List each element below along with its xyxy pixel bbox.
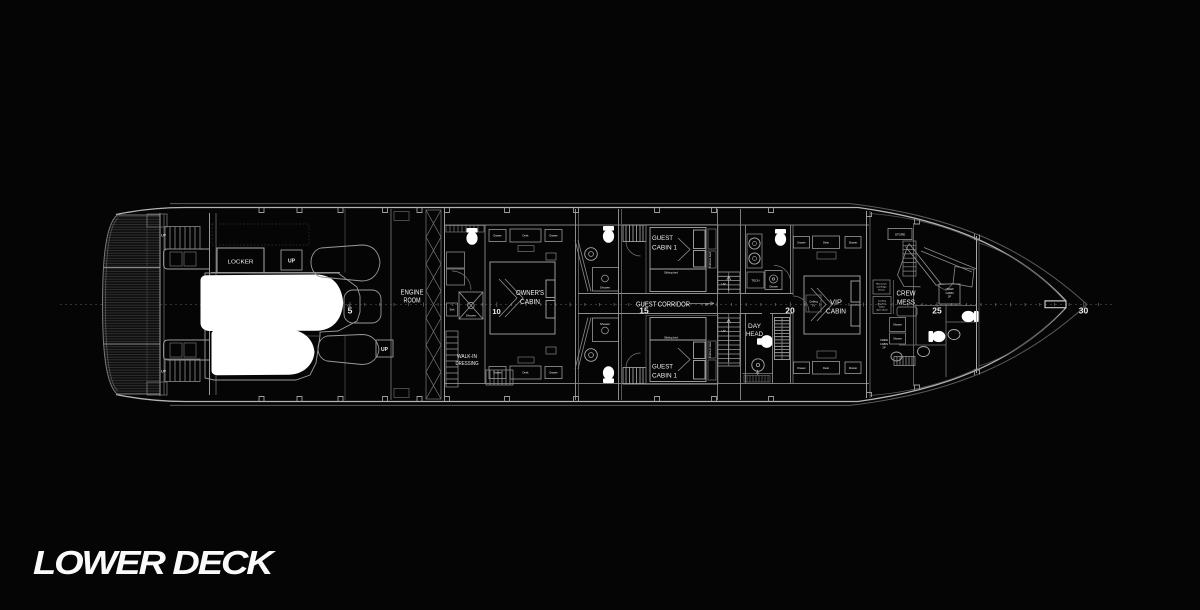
svg-text:OWNER'S: OWNER'S bbox=[516, 290, 544, 297]
svg-text:Shower: Shower bbox=[466, 314, 476, 318]
svg-text:30: 30 bbox=[1079, 306, 1089, 316]
svg-text:Shower: Shower bbox=[893, 337, 902, 341]
svg-text:Desk: Desk bbox=[823, 241, 830, 245]
svg-text:washing: washing bbox=[878, 301, 887, 303]
svg-text:Desk: Desk bbox=[523, 234, 530, 238]
svg-text:Drawer: Drawer bbox=[849, 241, 857, 245]
svg-text:CREW: CREW bbox=[946, 287, 954, 291]
svg-text:UP: UP bbox=[381, 347, 389, 353]
svg-text:Sink: Sink bbox=[449, 308, 455, 312]
svg-text:machine: machine bbox=[878, 304, 887, 306]
svg-text:UP: UP bbox=[721, 329, 725, 333]
svg-text:LOCKER: LOCKER bbox=[228, 260, 254, 266]
svg-text:Sliding bed: Sliding bed bbox=[664, 271, 678, 275]
svg-text:Sliding bed: Sliding bed bbox=[664, 336, 678, 340]
svg-text:STORE: STORE bbox=[895, 233, 905, 237]
svg-text:GUEST: GUEST bbox=[652, 235, 673, 242]
svg-text:CABIN: CABIN bbox=[946, 291, 954, 295]
svg-text:10: 10 bbox=[492, 307, 500, 316]
svg-text:Drawer: Drawer bbox=[493, 371, 501, 375]
svg-text:CABIN 1: CABIN 1 bbox=[652, 245, 677, 252]
svg-text:Drawer: Drawer bbox=[493, 234, 501, 238]
svg-text:CABIN: CABIN bbox=[880, 342, 888, 346]
svg-text:Shower: Shower bbox=[893, 323, 902, 327]
svg-text:Desk: Desk bbox=[823, 366, 830, 370]
svg-text:15: 15 bbox=[639, 306, 649, 316]
svg-text:Shower: Shower bbox=[600, 322, 610, 326]
svg-text:Pullman bed: Pullman bed bbox=[708, 252, 712, 268]
svg-text:freezer: freezer bbox=[878, 289, 885, 292]
svg-text:CREW: CREW bbox=[897, 291, 916, 298]
svg-text:VIP: VIP bbox=[830, 300, 842, 307]
svg-text:Drawer: Drawer bbox=[797, 366, 805, 370]
svg-text:Desk: Desk bbox=[523, 371, 530, 375]
svg-text:Pullman bed: Pullman bed bbox=[708, 342, 712, 358]
svg-text:UP: UP bbox=[705, 303, 709, 307]
svg-text:below: below bbox=[879, 307, 885, 309]
svg-text:CREW: CREW bbox=[880, 338, 888, 342]
svg-text:WALK-IN: WALK-IN bbox=[457, 354, 477, 360]
svg-text:Microwave: Microwave bbox=[876, 283, 887, 286]
svg-text:Drawer: Drawer bbox=[549, 371, 557, 375]
svg-text:UP: UP bbox=[721, 282, 725, 286]
svg-text:MESS: MESS bbox=[897, 300, 915, 307]
svg-text:HEAD: HEAD bbox=[746, 331, 763, 338]
svg-text:UP: UP bbox=[288, 259, 296, 265]
svg-text:TV: TV bbox=[812, 304, 816, 308]
svg-text:Drawer: Drawer bbox=[797, 241, 805, 245]
svg-text:Shower: Shower bbox=[769, 285, 778, 289]
svg-text:Drawer: Drawer bbox=[549, 234, 557, 238]
svg-text:CL: CL bbox=[347, 304, 351, 308]
svg-text:Shower: Shower bbox=[600, 286, 610, 290]
svg-text:DRESSING: DRESSING bbox=[456, 361, 479, 367]
svg-text:dryer above: dryer above bbox=[876, 309, 888, 312]
svg-text:DAY: DAY bbox=[748, 323, 762, 330]
svg-text:2P: 2P bbox=[882, 346, 885, 350]
svg-text:UP: UP bbox=[161, 234, 167, 238]
svg-text:25: 25 bbox=[932, 306, 942, 316]
svg-text:UP: UP bbox=[161, 370, 167, 374]
svg-text:GUEST: GUEST bbox=[652, 364, 673, 371]
svg-text:ROOM: ROOM bbox=[404, 298, 421, 305]
svg-text:ENGINE: ENGINE bbox=[401, 290, 424, 297]
svg-text:CABIN: CABIN bbox=[520, 299, 540, 306]
svg-text:Drawer: Drawer bbox=[849, 366, 857, 370]
svg-text:wall fridge: wall fridge bbox=[877, 286, 888, 289]
svg-text:TECH: TECH bbox=[751, 279, 759, 283]
svg-text:CABIN: CABIN bbox=[826, 309, 846, 316]
svg-text:2P: 2P bbox=[948, 295, 951, 299]
svg-text:CABIN 1: CABIN 1 bbox=[652, 373, 677, 380]
